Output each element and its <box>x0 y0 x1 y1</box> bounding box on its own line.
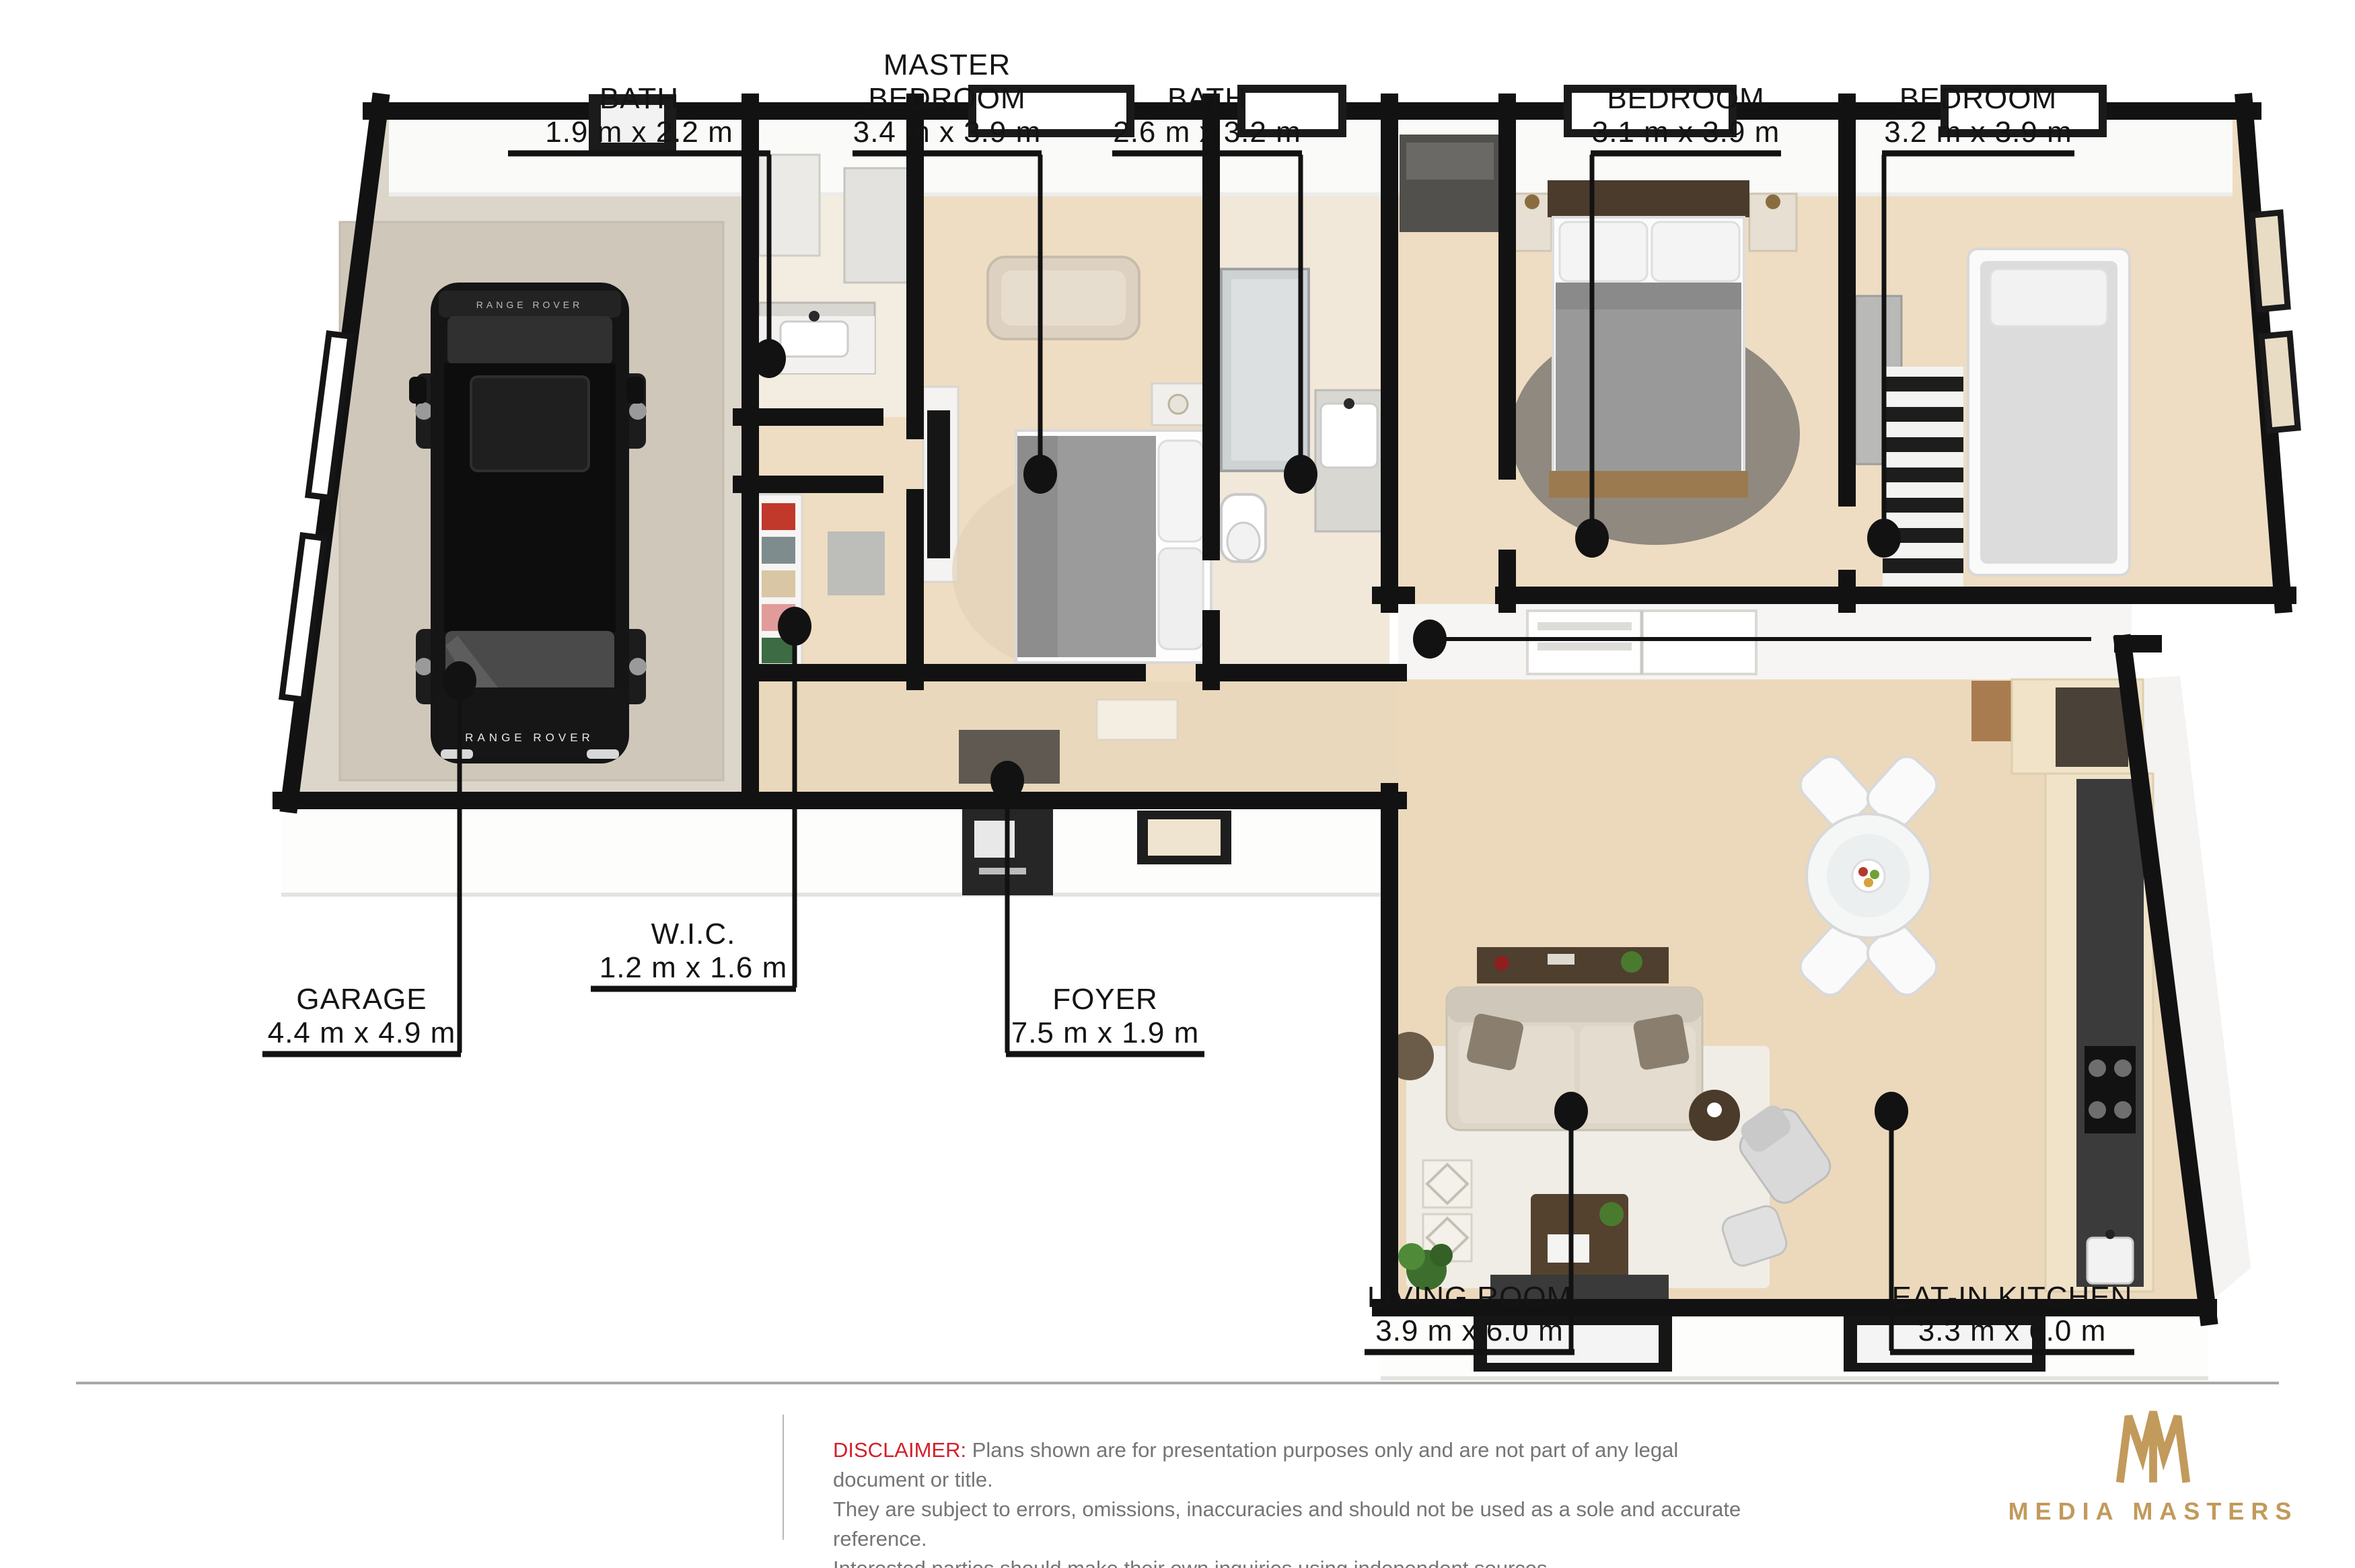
room-dims: 2.6 m x 3.2 m <box>1113 116 1301 149</box>
room-name: GARAGE <box>296 983 427 1016</box>
crown-mm-icon <box>2109 1405 2198 1485</box>
room-label-garage: GARAGE 4.4 m x 4.9 m <box>262 977 461 1050</box>
room-name: FOYER <box>1052 983 1158 1016</box>
room-label-bedroom-1: BEDROOM 3.1 m x 3.9 m <box>1591 77 1781 149</box>
hall-utility <box>1400 135 1500 232</box>
room-label-bath-2: BATH 2.6 m x 3.2 m <box>1112 77 1302 149</box>
disclaimer-text: DISCLAIMER: Plans shown are for presenta… <box>833 1435 1775 1568</box>
room-dims: 3.9 m x 6.0 m <box>1375 1314 1564 1348</box>
car-badge-text-rear: RANGE ROVER <box>476 299 583 310</box>
room-label-living-room: LIVING ROOM 3.9 m x 6.0 m <box>1365 1275 1574 1348</box>
room-name: BEDROOM <box>1899 82 2057 116</box>
disclaimer-line-3: Interested parties should make their own… <box>833 1554 1775 1568</box>
room-name: LIVING ROOM <box>1367 1281 1572 1314</box>
brand-name: MEDIA MASTERS <box>2008 1497 2298 1526</box>
room-label-wic: W.I.C. 1.2 m x 1.6 m <box>591 912 796 985</box>
bedroom-1-furniture <box>1511 180 1800 545</box>
footer-divider <box>76 1382 2279 1384</box>
room-dims: 4.4 m x 4.9 m <box>268 1016 456 1050</box>
room-label-foyer: FOYER 7.5 m x 1.9 m <box>1006 977 1204 1050</box>
zebra-rug <box>1883 367 1963 592</box>
room-label-master-bedroom: MASTER BEDROOM 3.4 m x 3.9 m <box>853 42 1042 149</box>
room-dims: 1.2 m x 1.6 m <box>600 951 788 985</box>
room-dims: 3.3 m x 6.0 m <box>1918 1314 2107 1348</box>
room-dims: 3.4 m x 3.9 m <box>853 116 1042 149</box>
room-name: EAT-IN KITCHEN <box>1892 1281 2133 1314</box>
room-name: W.I.C. <box>651 918 736 951</box>
media-masters-logo: MEDIA MASTERS <box>2052 1405 2254 1526</box>
room-label-bedroom-2: BEDROOM 3.2 m x 3.9 m <box>1882 77 2074 149</box>
disclaimer-line-2: They are subject to errors, omissions, i… <box>833 1495 1775 1554</box>
room-dims: 7.5 m x 1.9 m <box>1011 1016 1200 1050</box>
room-dims: 1.9 m x 2.2 m <box>545 116 733 149</box>
disclaimer-divider <box>783 1415 784 1540</box>
disclaimer-label: DISCLAIMER: <box>833 1438 966 1462</box>
room-name: BATH <box>1167 82 1247 116</box>
car-range-rover: RANGE ROVER RANGE ROVER <box>409 283 647 763</box>
room-name: BATH <box>600 82 679 116</box>
car-badge-text: RANGE ROVER <box>465 731 594 744</box>
room-dims: 3.1 m x 3.9 m <box>1592 116 1780 149</box>
room-label-eat-in-kitchen: EAT-IN KITCHEN 3.3 m x 6.0 m <box>1890 1275 2134 1348</box>
room-dims: 3.2 m x 3.9 m <box>1884 116 2072 149</box>
room-name: BEDROOM <box>1607 82 1764 116</box>
room-label-bath-1: BATH 1.9 m x 2.2 m <box>508 77 770 149</box>
floor-plan-page: RANGE ROVER RANGE ROVER <box>0 0 2355 1568</box>
room-name: MASTER BEDROOM <box>853 48 1042 116</box>
